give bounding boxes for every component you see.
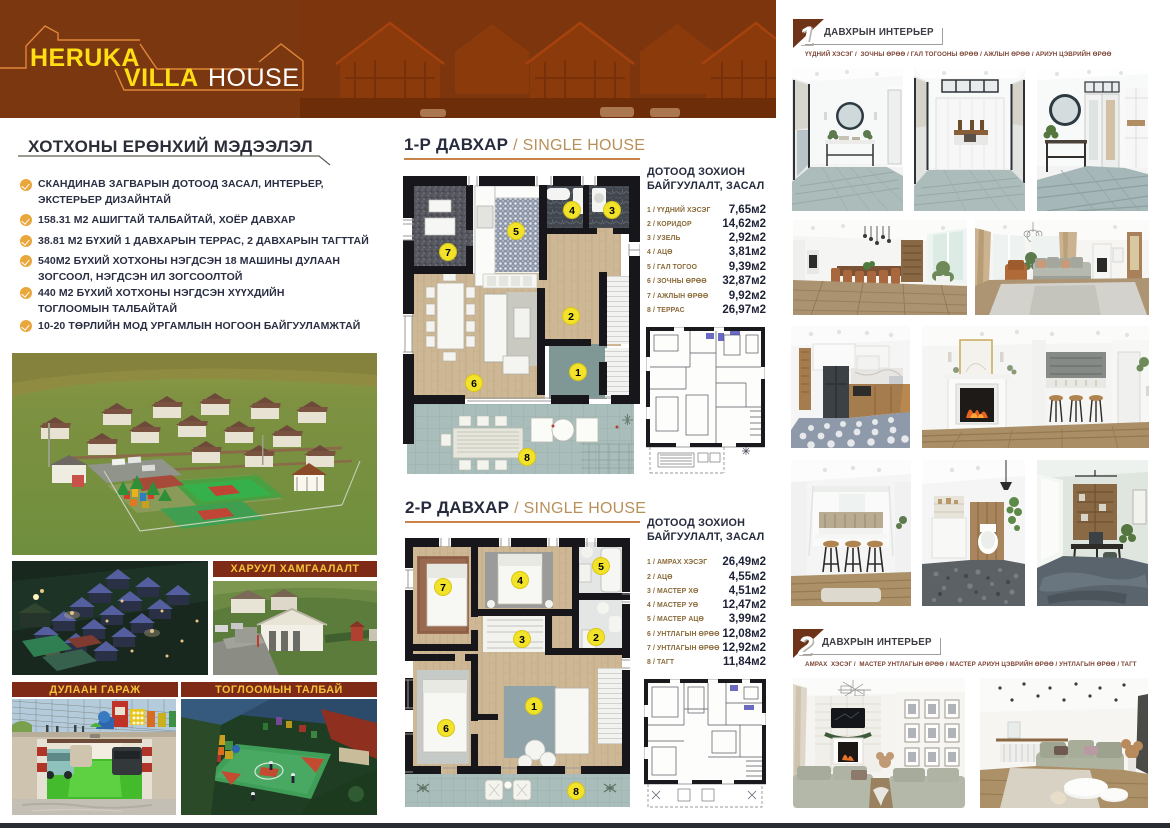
svg-text:7: 7 <box>445 247 451 259</box>
svg-text:6: 6 <box>443 723 449 735</box>
svg-text:7: 7 <box>440 582 446 594</box>
svg-text:5: 5 <box>513 226 519 238</box>
svg-text:1: 1 <box>575 367 581 379</box>
svg-text:5: 5 <box>598 561 604 573</box>
svg-text:8: 8 <box>524 452 530 464</box>
svg-text:HOUSE: HOUSE <box>208 64 299 92</box>
svg-text:2: 2 <box>568 311 574 323</box>
svg-text:4: 4 <box>569 205 575 217</box>
svg-text:3: 3 <box>519 634 525 646</box>
svg-text:VILLA: VILLA <box>124 64 199 92</box>
svg-text:8: 8 <box>573 786 579 798</box>
svg-text:6: 6 <box>471 378 477 390</box>
svg-text:1: 1 <box>531 701 537 713</box>
svg-text:2: 2 <box>593 632 599 644</box>
svg-text:3: 3 <box>609 205 615 217</box>
svg-text:4: 4 <box>517 575 523 587</box>
